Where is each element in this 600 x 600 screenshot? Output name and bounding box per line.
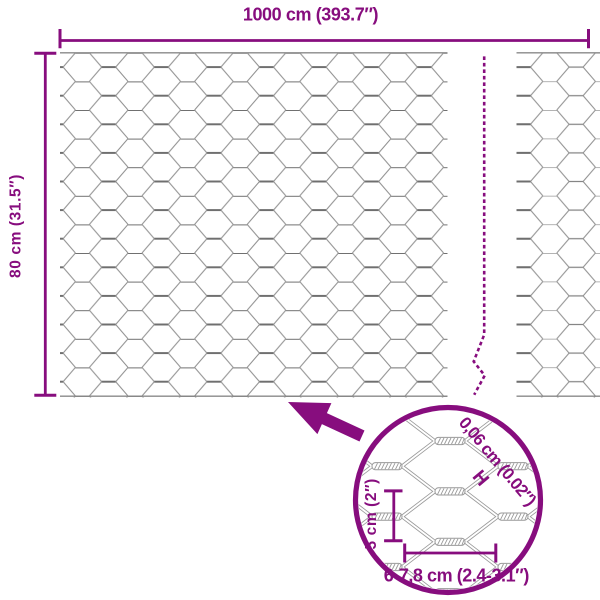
svg-text:5 cm (2″): 5 cm (2″) xyxy=(363,478,380,549)
svg-text:80 cm (31.5″): 80 cm (31.5″) xyxy=(8,174,25,278)
svg-text:1000 cm (393.7″): 1000 cm (393.7″) xyxy=(243,5,379,25)
svg-text:6-7,8 cm (2.4-3.1″): 6-7,8 cm (2.4-3.1″) xyxy=(384,566,530,586)
